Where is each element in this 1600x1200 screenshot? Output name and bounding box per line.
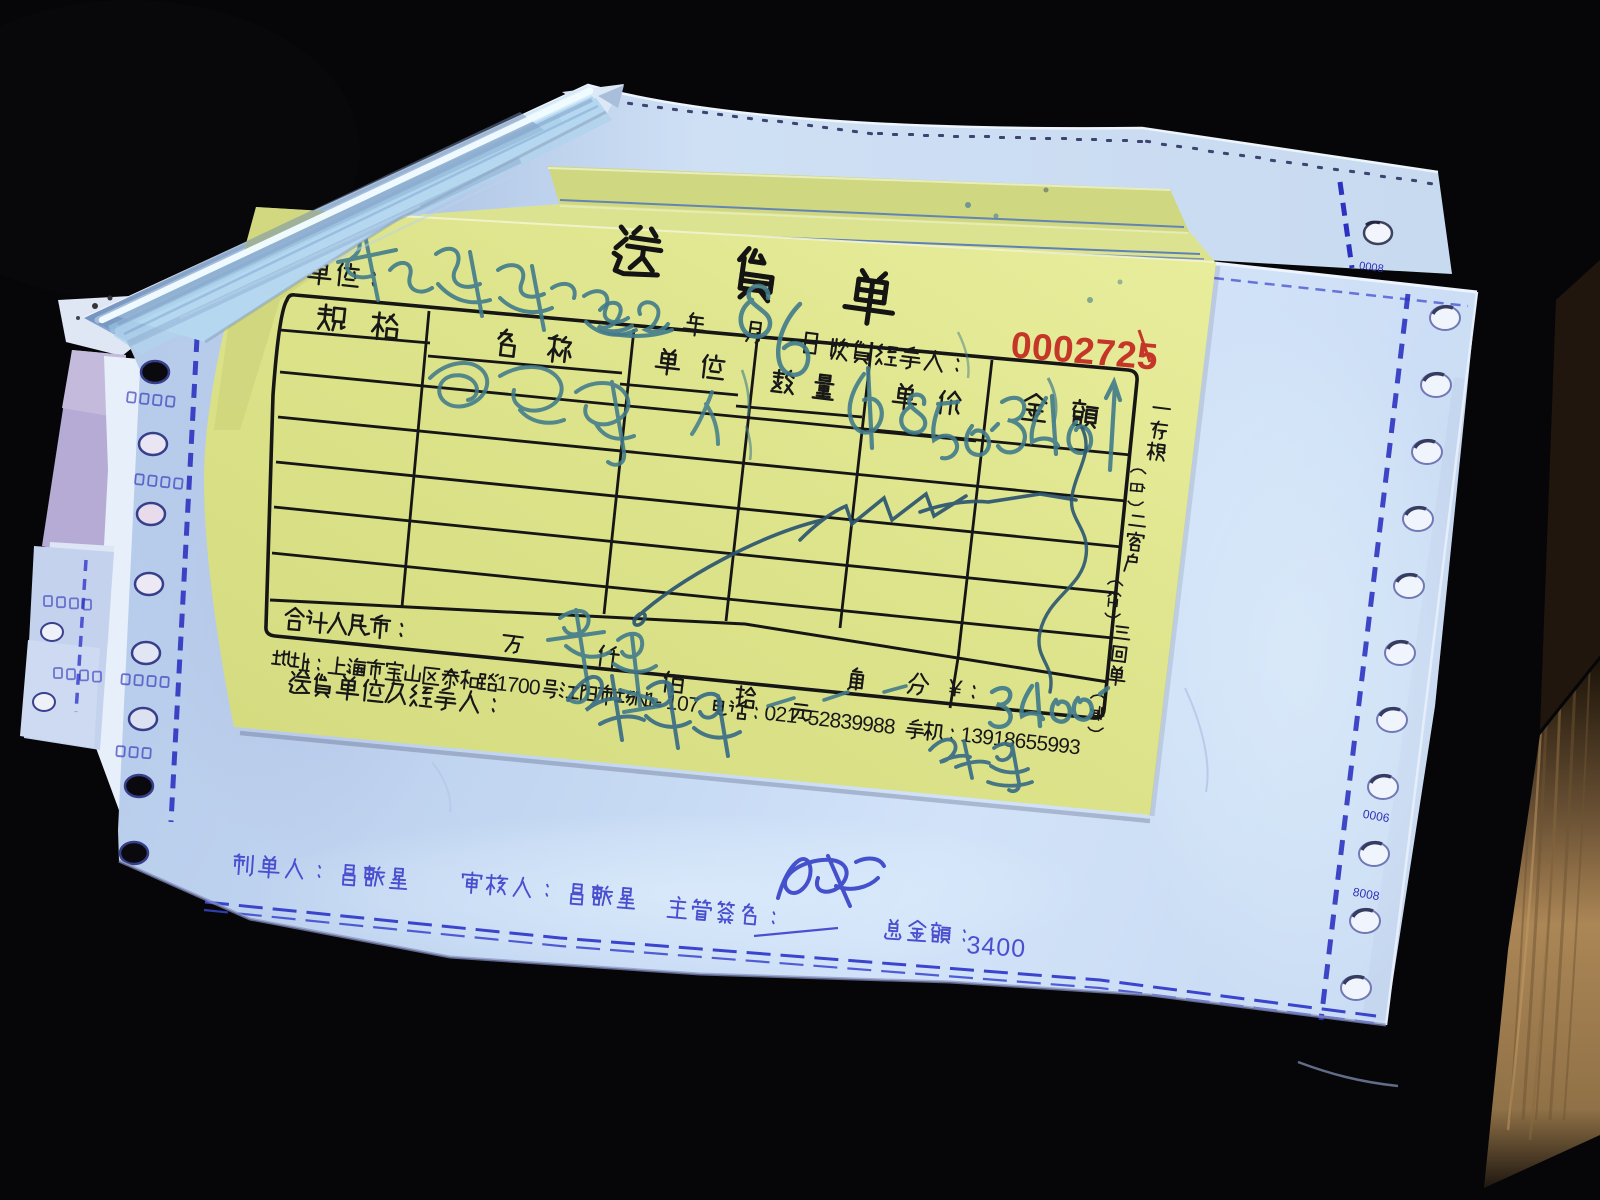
svg-text:3400: 3400 bbox=[966, 931, 1027, 963]
svg-text:8: 8 bbox=[883, 715, 897, 739]
svg-text:0: 0 bbox=[528, 676, 542, 700]
